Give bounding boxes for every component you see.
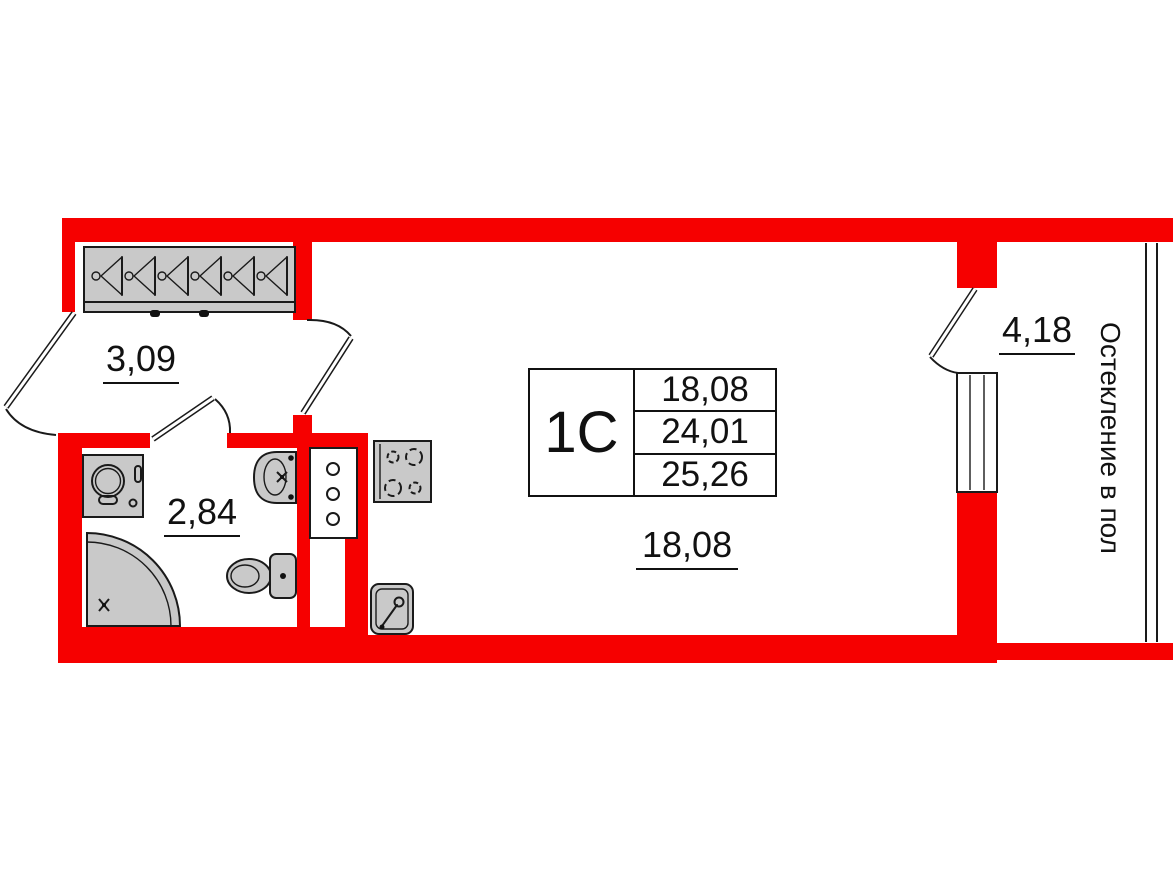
area-table: 1С 18,08 24,01 25,26 <box>528 368 777 497</box>
floor-plan: 3,09 2,84 4,18 18,08 1С 18,08 24,01 25,2… <box>0 0 1173 880</box>
glazing-note-label: Остекление в пол <box>1092 313 1128 563</box>
bathroom-area-label: 2,84 <box>164 494 240 537</box>
wardrobe <box>84 247 295 317</box>
vent-shaft <box>310 448 357 538</box>
kitchen-sink-icon <box>371 584 413 634</box>
balcony-window <box>957 373 997 492</box>
entrance-door <box>6 313 74 435</box>
shower-icon <box>87 533 180 626</box>
bathroom-door <box>153 398 230 439</box>
panoramic-glazing <box>1146 243 1157 642</box>
toilet-icon <box>227 554 296 598</box>
bathroom-sink-icon <box>254 452 296 503</box>
hallway-area-label: 3,09 <box>103 341 179 384</box>
room-door <box>303 320 351 413</box>
washing-machine-icon <box>83 455 143 517</box>
living-room-area-label: 18,08 <box>636 527 738 570</box>
area-table-row: 25,26 <box>635 453 775 495</box>
balcony-door <box>930 289 975 373</box>
area-table-row: 24,01 <box>635 410 775 452</box>
area-table-row: 18,08 <box>635 370 775 410</box>
balcony-area-label: 4,18 <box>999 312 1075 355</box>
stove-icon <box>374 441 431 502</box>
unit-type-label: 1С <box>530 370 635 495</box>
